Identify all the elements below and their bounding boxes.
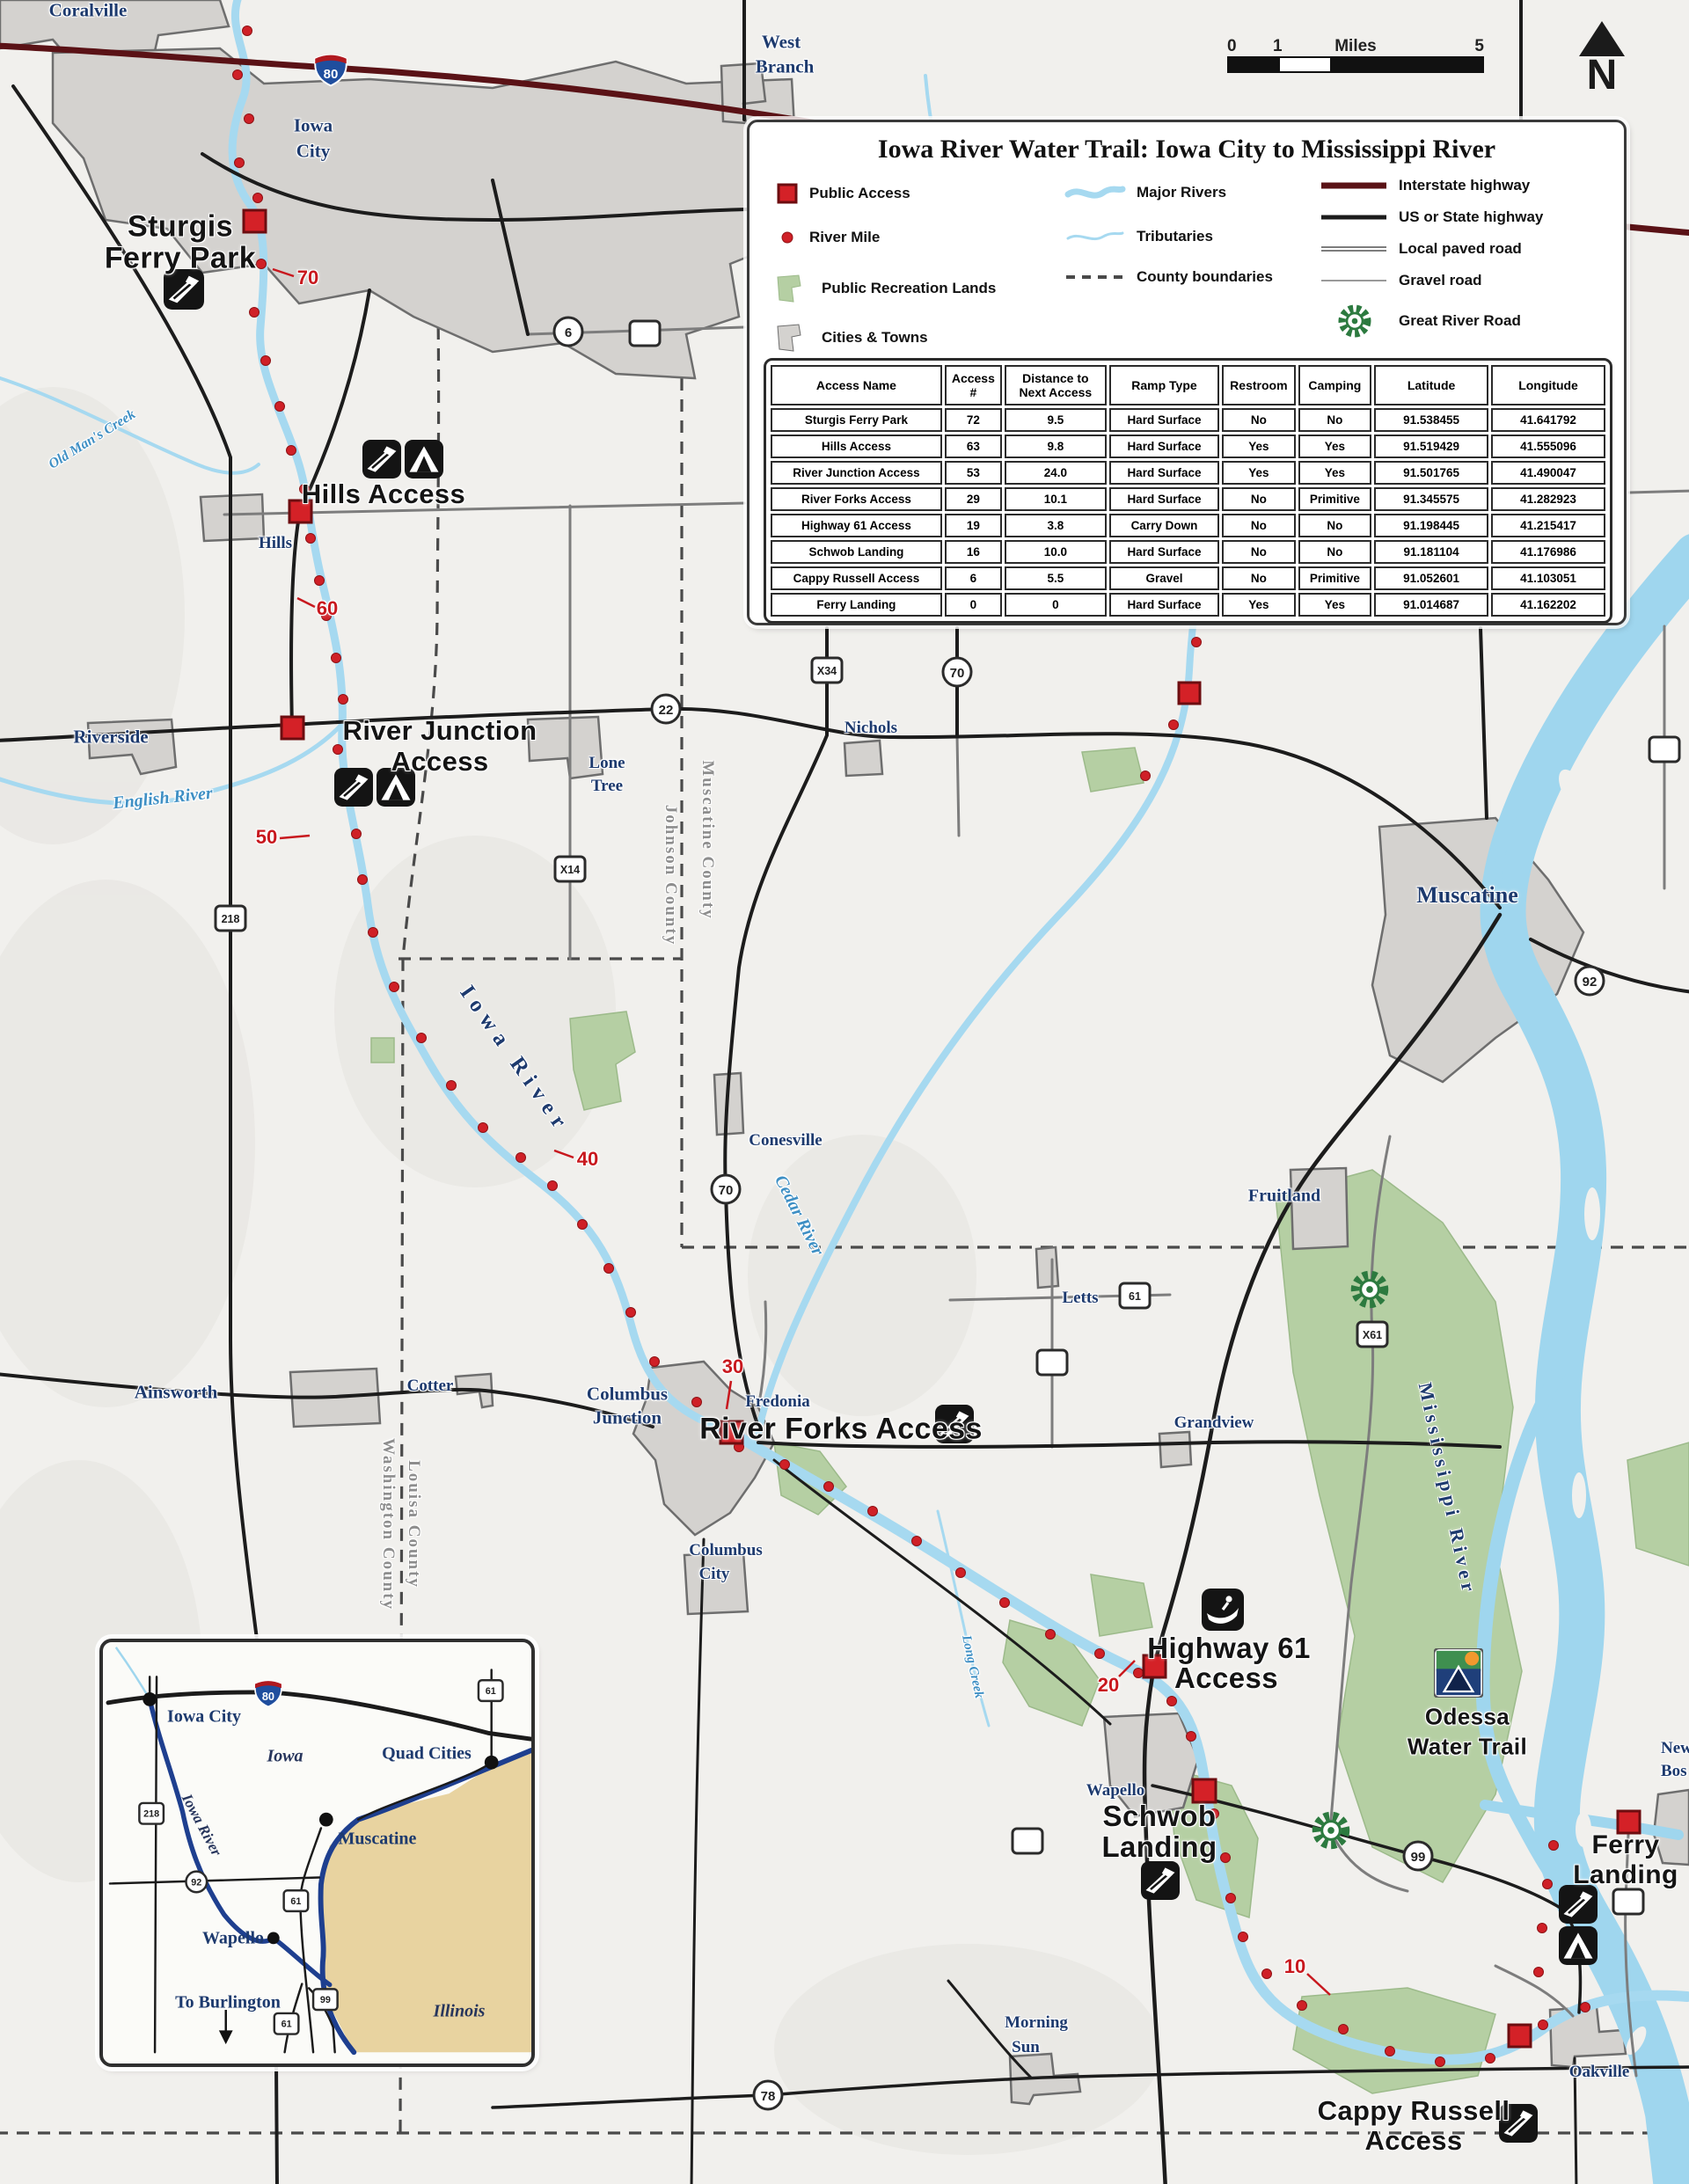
svg-text:70: 70 xyxy=(950,666,965,681)
legend-label: Public Recreation Lands xyxy=(822,280,996,297)
svg-text:92: 92 xyxy=(1583,975,1598,990)
legend-item-major-rivers: Major Rivers xyxy=(1064,182,1226,203)
cell-distance: 9.8 xyxy=(1005,435,1107,458)
cell-camping: Yes xyxy=(1298,461,1372,485)
legend-label: Public Access xyxy=(809,185,910,202)
cell-ramp-type: Hard Surface xyxy=(1109,487,1219,511)
cell-access-number: 63 xyxy=(945,435,1002,458)
town-label-morning-sun2: Sun xyxy=(1012,2038,1040,2057)
table-row: River Forks Access 29 10.1 Hard Surface … xyxy=(771,487,1605,511)
north-label: N xyxy=(1571,56,1633,94)
local-paved-road-icon xyxy=(1320,244,1388,254)
map-page: 80 6 22 70 70 92 78 99 X34 X14 218 X61 xyxy=(0,0,1689,2184)
legend-item-rec-lands: Public Recreation Lands xyxy=(776,274,996,303)
table-row: River Junction Access 53 24.0 Hard Surfa… xyxy=(771,461,1605,485)
town-label-new-boston: New xyxy=(1661,1739,1689,1758)
town-label-fredonia: Fredonia xyxy=(745,1392,810,1412)
inset-label-illinois: Illinois xyxy=(434,2002,486,2022)
access-label-hills: Hills Access xyxy=(302,478,465,510)
cell-ramp-type: Hard Surface xyxy=(1109,461,1219,485)
svg-text:99: 99 xyxy=(320,1995,331,2005)
great-river-road-icon xyxy=(1317,1816,1346,1845)
town-label-coralville: Coralville xyxy=(49,0,128,22)
river-mile-60: 60 xyxy=(317,597,338,620)
legend-item-tributaries: Tributaries xyxy=(1064,226,1213,247)
inset-label-iowa-city: Iowa City xyxy=(167,1707,241,1727)
legend-item-local-paved: Local paved road xyxy=(1320,240,1522,258)
legend-label: Gravel road xyxy=(1399,272,1482,289)
col-access-number: Access # xyxy=(945,365,1002,405)
col-distance: Distance to Next Access xyxy=(1005,365,1107,405)
county-label-washington: Washington County xyxy=(378,1438,398,1611)
scale-tick-5: 5 xyxy=(1474,37,1484,56)
table-row: Sturgis Ferry Park 72 9.5 Hard Surface N… xyxy=(771,408,1605,432)
svg-text:X14: X14 xyxy=(560,864,580,876)
svg-text:61: 61 xyxy=(486,1686,496,1697)
legend-label: Interstate highway xyxy=(1399,177,1530,194)
cell-longitude: 41.215417 xyxy=(1491,514,1605,537)
access-marker-cedar xyxy=(1179,683,1200,704)
town-label-hills: Hills xyxy=(259,534,292,553)
town-label-conesville: Conesville xyxy=(749,1131,822,1150)
town-label-riverside: Riverside xyxy=(73,727,148,749)
boat-ramp-icon xyxy=(334,768,373,807)
cell-access-number: 0 xyxy=(945,593,1002,617)
col-restroom: Restroom xyxy=(1222,365,1296,405)
cell-longitude: 41.282923 xyxy=(1491,487,1605,511)
cell-access-name: River Junction Access xyxy=(771,461,942,485)
north-arrow-icon xyxy=(1579,21,1625,56)
town-label-oakville: Oakville xyxy=(1569,2063,1630,2082)
svg-text:22: 22 xyxy=(659,703,674,718)
cell-ramp-type: Hard Surface xyxy=(1109,435,1219,458)
col-access-name: Access Name xyxy=(771,365,942,405)
inset-creek xyxy=(116,1647,150,1699)
cell-ramp-type: Gravel xyxy=(1109,566,1219,590)
camping-icon xyxy=(405,440,443,478)
cell-restroom: Yes xyxy=(1222,461,1296,485)
legend-item-us-state: US or State highway xyxy=(1320,208,1543,226)
legend-label: Great River Road xyxy=(1399,312,1521,330)
public-access-icon xyxy=(776,182,799,205)
access-label-highway61-2: Access xyxy=(1174,1662,1278,1695)
cell-access-name: Highway 61 Access xyxy=(771,514,942,537)
odessa-logo-icon xyxy=(1434,1648,1483,1698)
cell-longitude: 41.641792 xyxy=(1491,408,1605,432)
cell-access-name: Ferry Landing xyxy=(771,593,942,617)
scale-seg xyxy=(1229,58,1280,71)
cell-latitude: 91.501765 xyxy=(1374,461,1488,485)
cell-ramp-type: Hard Surface xyxy=(1109,540,1219,564)
burlington-arrow xyxy=(221,2010,231,2042)
scale-seg xyxy=(1280,58,1331,71)
cell-longitude: 41.555096 xyxy=(1491,435,1605,458)
gravel-road-icon xyxy=(1320,275,1388,286)
cell-access-number: 16 xyxy=(945,540,1002,564)
legend-item-public-access: Public Access xyxy=(776,182,910,205)
cell-camping: Primitive xyxy=(1298,566,1372,590)
table-row: Cappy Russell Access 6 5.5 Gravel No Pri… xyxy=(771,566,1605,590)
inset-label-iowa: Iowa xyxy=(267,1747,303,1767)
town-label-grandview: Grandview xyxy=(1174,1413,1254,1433)
cell-distance: 9.5 xyxy=(1005,408,1107,432)
svg-text:218: 218 xyxy=(143,1809,159,1820)
access-label-highway61: Highway 61 xyxy=(1147,1632,1311,1665)
access-label-schwob2: Landing xyxy=(1101,1830,1217,1864)
access-marker-river-junction xyxy=(281,717,303,739)
access-label-river-junction: River Junction xyxy=(343,715,537,747)
town-label-lone-tree: Lone xyxy=(589,754,625,773)
svg-text:6: 6 xyxy=(565,325,572,340)
cell-distance: 5.5 xyxy=(1005,566,1107,590)
inset-label-muscatine: Muscatine xyxy=(339,1830,417,1850)
town-label-new-boston2: Bos xyxy=(1661,1762,1687,1781)
cell-access-name: Hills Access xyxy=(771,435,942,458)
cell-ramp-type: Hard Surface xyxy=(1109,593,1219,617)
scale-tick-0: 0 xyxy=(1227,37,1237,56)
cell-camping: Primitive xyxy=(1298,487,1372,511)
cell-access-number: 29 xyxy=(945,487,1002,511)
town-label-wapello: Wapello xyxy=(1086,1781,1145,1801)
town-label-west-branch2: Branch xyxy=(756,56,815,78)
river-mile-70: 70 xyxy=(297,267,318,289)
access-label-ferry: Ferry xyxy=(1591,1830,1659,1860)
town-label-fruitland: Fruitland xyxy=(1248,1187,1320,1207)
cell-latitude: 91.538455 xyxy=(1374,408,1488,432)
legend-label: Local paved road xyxy=(1399,240,1522,258)
legend-label: Cities & Towns xyxy=(822,329,928,347)
label-odessa: Odessa xyxy=(1425,1704,1510,1731)
cell-restroom: No xyxy=(1222,514,1296,537)
cell-longitude: 41.103051 xyxy=(1491,566,1605,590)
svg-text:92: 92 xyxy=(191,1877,201,1888)
town-label-columbus-city: Columbus xyxy=(689,1541,762,1560)
scale-seg xyxy=(1330,58,1482,71)
access-label-cappy2: Access xyxy=(1365,2125,1463,2157)
legend-panel: Iowa River Water Trail: Iowa City to Mis… xyxy=(747,120,1627,625)
cell-latitude: 91.198445 xyxy=(1374,514,1488,537)
cell-distance: 0 xyxy=(1005,593,1107,617)
river-mile-30: 30 xyxy=(722,1355,743,1378)
cell-access-name: Cappy Russell Access xyxy=(771,566,942,590)
town-label-muscatine: Muscatine xyxy=(1416,882,1518,909)
table-header-row: Access Name Access # Distance to Next Ac… xyxy=(771,365,1605,405)
access-label-river-forks: River Forks Access xyxy=(699,1413,983,1447)
access-label-sturgis: Sturgis xyxy=(128,210,233,245)
county-label-muscatine: Muscatine County xyxy=(698,760,717,919)
cell-access-number: 53 xyxy=(945,461,1002,485)
cell-latitude: 91.181104 xyxy=(1374,540,1488,564)
cell-ramp-type: Hard Surface xyxy=(1109,408,1219,432)
cell-restroom: No xyxy=(1222,540,1296,564)
town-label-iowa-city: Iowa xyxy=(294,115,333,137)
town-label-columbus-junction: Columbus xyxy=(587,1384,668,1406)
town-label-morning-sun: Morning xyxy=(1005,2013,1068,2033)
cell-access-name: Schwob Landing xyxy=(771,540,942,564)
cell-restroom: No xyxy=(1222,566,1296,590)
inset-label-wapello: Wapello xyxy=(202,1929,264,1949)
access-label-sturgis2: Ferry Park xyxy=(105,242,256,276)
inset-i80-label: 80 xyxy=(262,1690,274,1703)
cell-longitude: 41.176986 xyxy=(1491,540,1605,564)
cell-access-name: River Forks Access xyxy=(771,487,942,511)
boat-ramp-icon xyxy=(1559,1885,1598,1924)
scale-unit: Miles xyxy=(1334,37,1377,56)
col-ramp-type: Ramp Type xyxy=(1109,365,1219,405)
table-row: Highway 61 Access 19 3.8 Carry Down No N… xyxy=(771,514,1605,537)
inset-locator-map: 80 61 218 92 61 61 99 Iowa City Quad Cit… xyxy=(99,1639,535,2067)
cell-longitude: 41.162202 xyxy=(1491,593,1605,617)
legend-item-river-mile: River Mile xyxy=(776,226,880,249)
town-label-west-branch: West xyxy=(762,32,801,54)
tributary-icon xyxy=(1064,226,1126,247)
boat-ramp-icon xyxy=(362,440,401,478)
legend-item-cities: Cities & Towns xyxy=(776,323,928,353)
svg-text:X34: X34 xyxy=(817,665,837,677)
cell-access-number: 19 xyxy=(945,514,1002,537)
inset-label-quad-cities: Quad Cities xyxy=(382,1744,472,1764)
svg-text:61: 61 xyxy=(281,2020,292,2030)
river-mile-10: 10 xyxy=(1284,1955,1305,1978)
recreation-lands-icon xyxy=(776,274,811,303)
river-mile-20: 20 xyxy=(1098,1674,1119,1697)
town-label-letts: Letts xyxy=(1062,1289,1098,1308)
svg-text:78: 78 xyxy=(761,2089,776,2104)
col-longitude: Longitude xyxy=(1491,365,1605,405)
cell-restroom: No xyxy=(1222,408,1296,432)
cell-access-number: 6 xyxy=(945,566,1002,590)
cell-latitude: 91.014687 xyxy=(1374,593,1488,617)
access-label-cappy: Cappy Russell xyxy=(1318,2095,1510,2127)
town-label-lone-tree2: Tree xyxy=(591,777,623,796)
town-label-columbus-city2: City xyxy=(699,1565,730,1584)
access-label-ferry2: Landing xyxy=(1573,1860,1678,1890)
table-row: Hills Access 63 9.8 Hard Surface Yes Yes… xyxy=(771,435,1605,458)
cell-camping: Yes xyxy=(1298,593,1372,617)
legend-item-interstate: Interstate highway xyxy=(1320,177,1530,194)
legend-label: US or State highway xyxy=(1399,208,1543,226)
col-latitude: Latitude xyxy=(1374,365,1488,405)
access-marker-sturgis xyxy=(244,210,266,232)
legend-item-county-boundaries: County boundaries xyxy=(1064,268,1273,286)
access-table: Access Name Access # Distance to Next Ac… xyxy=(768,362,1608,619)
cell-restroom: Yes xyxy=(1222,435,1296,458)
legend-item-great-river-road: Great River Road xyxy=(1320,303,1521,339)
cell-distance: 10.0 xyxy=(1005,540,1107,564)
svg-text:70: 70 xyxy=(719,1183,734,1198)
cell-access-number: 72 xyxy=(945,408,1002,432)
legend-label: Major Rivers xyxy=(1137,184,1226,201)
cell-camping: No xyxy=(1298,408,1372,432)
town-label-columbus-junction2: Junction xyxy=(593,1407,662,1429)
us-state-highway-icon xyxy=(1320,212,1388,223)
svg-text:X61: X61 xyxy=(1363,1329,1382,1341)
county-boundary-icon xyxy=(1064,271,1126,283)
svg-text:99: 99 xyxy=(1411,1850,1426,1865)
svg-text:61: 61 xyxy=(290,1896,301,1907)
cell-distance: 10.1 xyxy=(1005,487,1107,511)
county-label-louisa: Louisa County xyxy=(404,1460,423,1589)
scale-bar-graphic xyxy=(1227,56,1484,73)
interstate-icon xyxy=(1320,180,1388,191)
cell-latitude: 91.345575 xyxy=(1374,487,1488,511)
cell-restroom: No xyxy=(1222,487,1296,511)
inset-label-to-burlington: To Burlington xyxy=(175,1993,281,2013)
legend-label: River Mile xyxy=(809,229,880,246)
scale-tick-1: 1 xyxy=(1273,37,1283,56)
river-mile-50: 50 xyxy=(256,826,277,849)
i80-shield-label: 80 xyxy=(324,67,339,82)
boat-ramp-icon xyxy=(1141,1861,1180,1900)
cell-longitude: 41.490047 xyxy=(1491,461,1605,485)
town-label-cotter: Cotter xyxy=(407,1377,454,1396)
cell-camping: No xyxy=(1298,540,1372,564)
town-label-iowa-city2: City xyxy=(296,141,331,163)
cell-latitude: 91.519429 xyxy=(1374,435,1488,458)
svg-text:218: 218 xyxy=(222,913,240,925)
river-mile-40: 40 xyxy=(577,1148,598,1171)
cell-restroom: Yes xyxy=(1222,593,1296,617)
map-title: Iowa River Water Trail: Iowa City to Mis… xyxy=(749,135,1624,164)
legend-label: Tributaries xyxy=(1137,228,1213,245)
cell-ramp-type: Carry Down xyxy=(1109,514,1219,537)
camping-icon xyxy=(1559,1926,1598,1965)
cell-camping: No xyxy=(1298,514,1372,537)
cell-distance: 24.0 xyxy=(1005,461,1107,485)
access-marker-cappy xyxy=(1509,2025,1531,2047)
cell-access-name: Sturgis Ferry Park xyxy=(771,408,942,432)
cell-distance: 3.8 xyxy=(1005,514,1107,537)
cell-latitude: 91.052601 xyxy=(1374,566,1488,590)
svg-text:61: 61 xyxy=(1129,1290,1141,1303)
county-label-johnson: Johnson County xyxy=(661,805,680,946)
label-odessa2: Water Trail xyxy=(1407,1734,1527,1761)
great-river-road-legend-icon xyxy=(1320,303,1388,339)
carry-down-icon xyxy=(1202,1589,1244,1631)
access-label-schwob: Schwob xyxy=(1103,1800,1217,1833)
table-row: Ferry Landing 0 0 Hard Surface Yes Yes 9… xyxy=(771,593,1605,617)
legend-item-gravel: Gravel road xyxy=(1320,272,1482,289)
scale-bar: 0 1 Miles 5 xyxy=(1227,37,1484,73)
legend-label: County boundaries xyxy=(1137,268,1273,286)
river-mile-icon xyxy=(776,226,799,249)
col-camping: Camping xyxy=(1298,365,1372,405)
major-river-icon xyxy=(1064,182,1126,203)
town-label-nichols: Nichols xyxy=(844,719,897,738)
town-label-ainsworth: Ainsworth xyxy=(135,1382,218,1404)
cell-camping: Yes xyxy=(1298,435,1372,458)
cities-towns-icon xyxy=(776,323,811,353)
north-arrow: N xyxy=(1571,21,1633,94)
access-table-wrap: Access Name Access # Distance to Next Ac… xyxy=(764,358,1612,624)
table-row: Schwob Landing 16 10.0 Hard Surface No N… xyxy=(771,540,1605,564)
inset-canvas: 80 61 218 92 61 61 99 xyxy=(103,1642,531,2063)
access-label-river-junction2: Access xyxy=(391,746,489,778)
